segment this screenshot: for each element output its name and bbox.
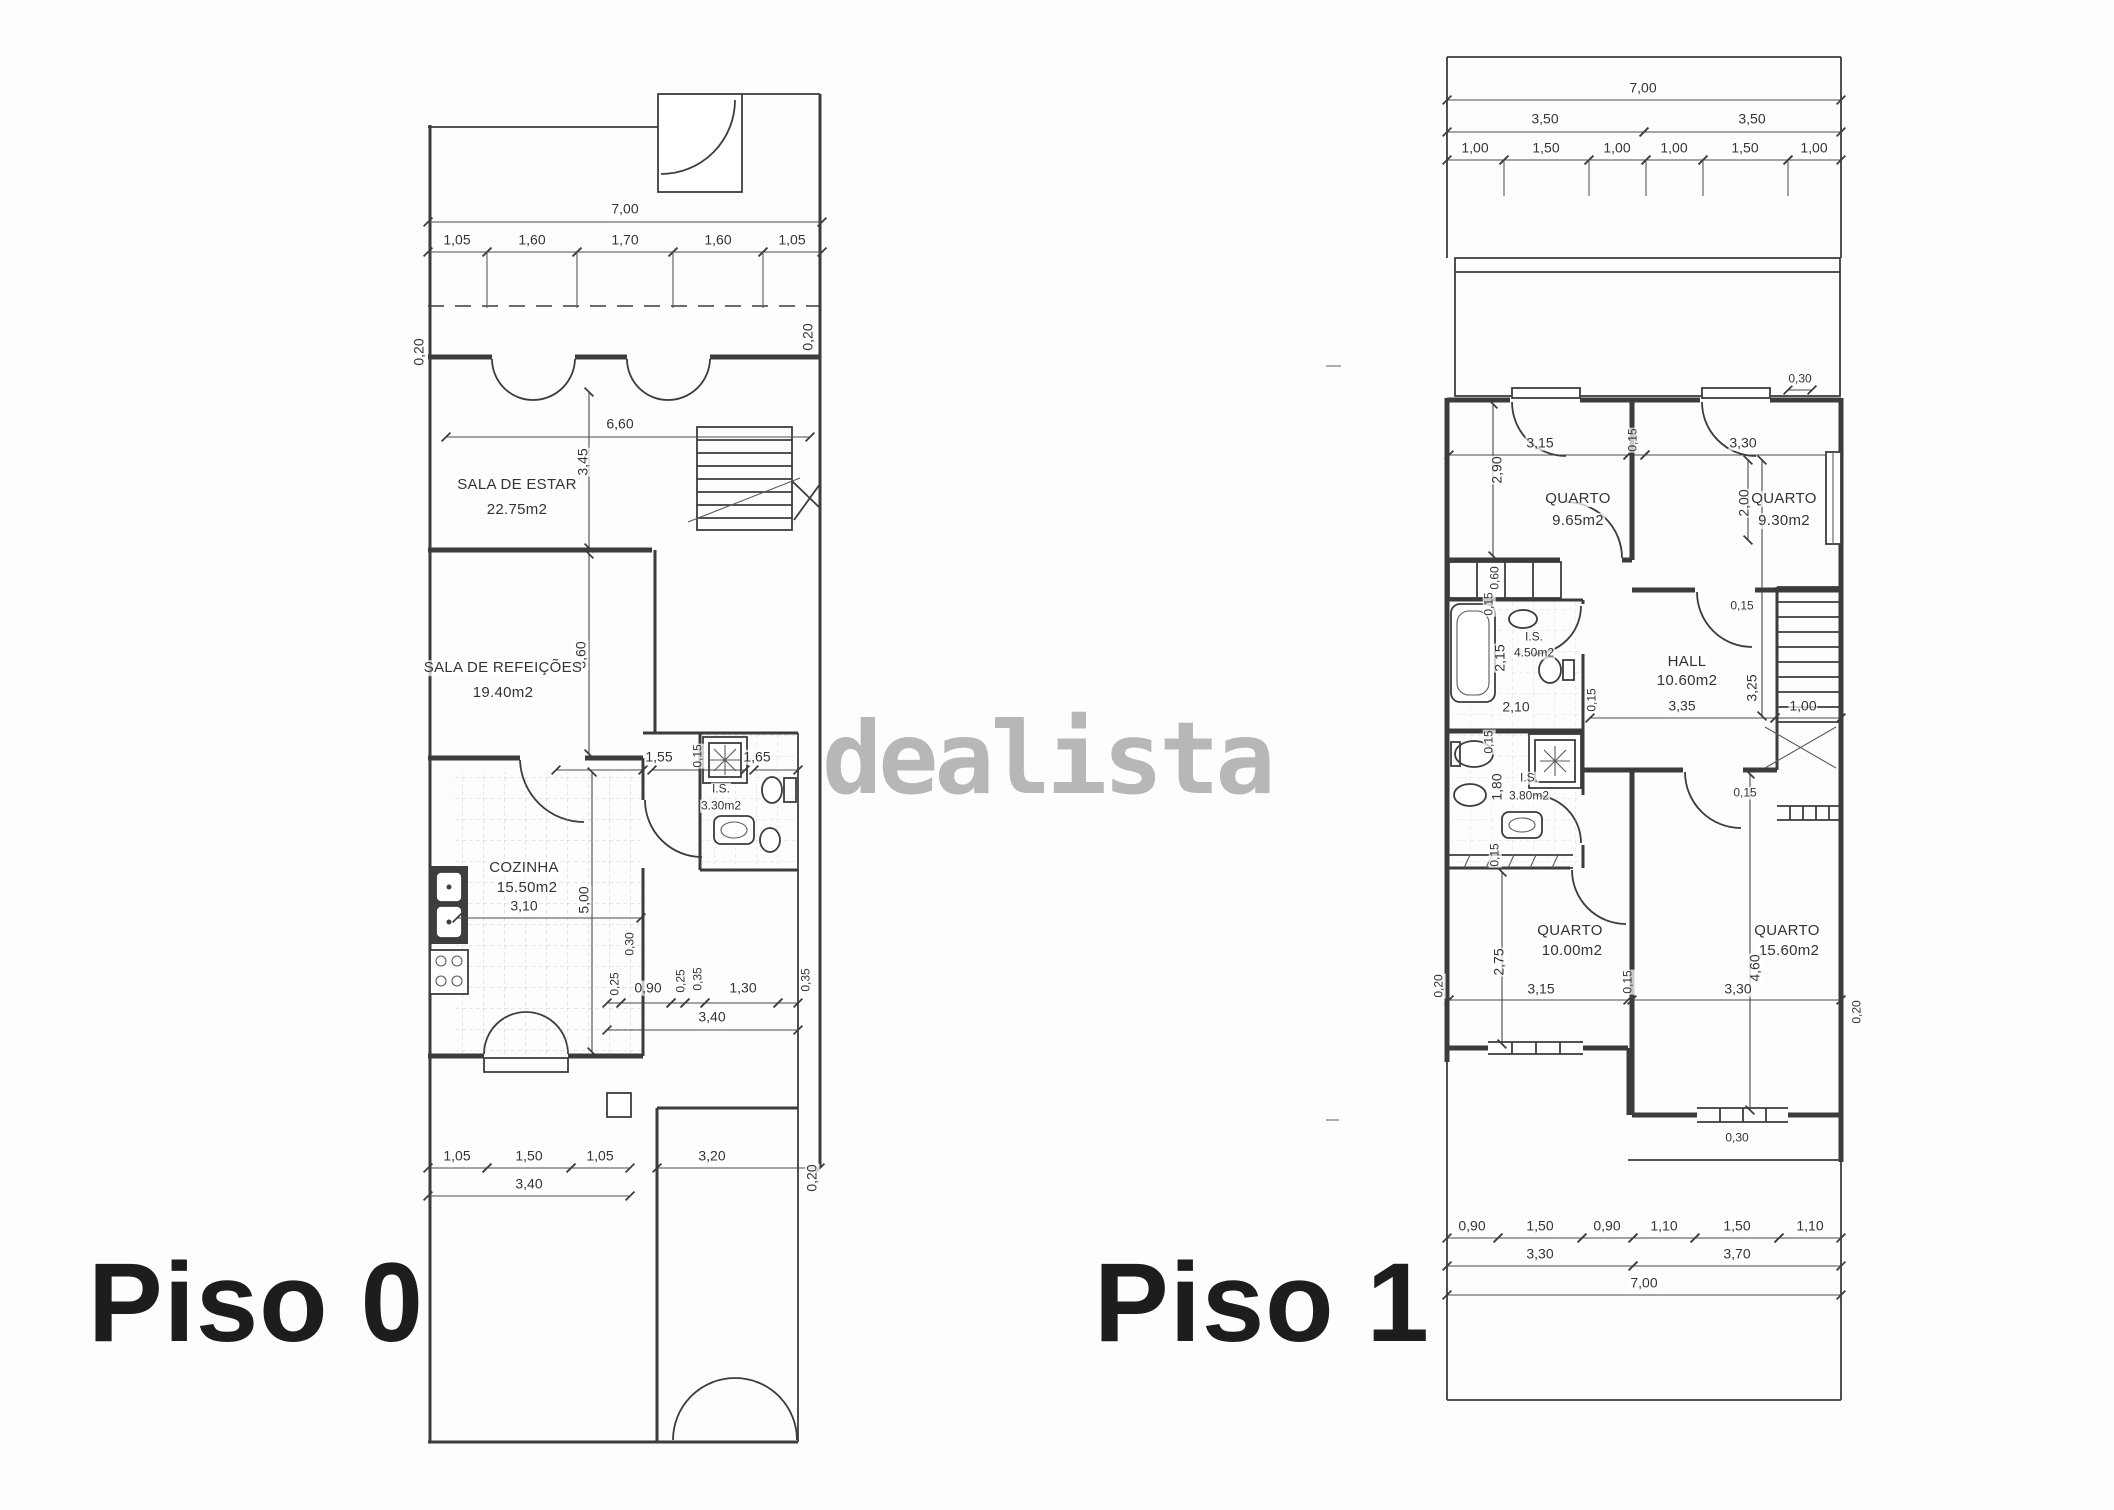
dim-label: 0,15 <box>1586 687 1599 712</box>
dim-label: 3,40 <box>697 1010 726 1025</box>
dim-label: 3,15 <box>1526 982 1555 997</box>
dim-label: 1,55 <box>644 750 673 765</box>
room-area-is2: 3.80m2 <box>1508 790 1550 803</box>
dim-label: 0,30 <box>1787 373 1812 386</box>
dim-label: 0,90 <box>1592 1219 1621 1234</box>
room-label-is: I.S. <box>711 783 731 796</box>
dim-label: 7,00 <box>610 202 639 217</box>
dim-label: 1,00 <box>1602 141 1631 156</box>
room-area-hall: 10.60m2 <box>1656 673 1718 689</box>
dim-label: 1,65 <box>742 750 771 765</box>
dim-label: 0,60 <box>1489 565 1502 590</box>
room-area-quarto1: 9.65m2 <box>1551 513 1605 529</box>
dim-label: 1,10 <box>1795 1219 1824 1234</box>
room-area-sala-de-estar: 22.75m2 <box>486 502 548 518</box>
dim-label: 1,50 <box>514 1149 543 1164</box>
dim-label: 3,20 <box>697 1149 726 1164</box>
dim-label: 4,60 <box>1748 953 1763 982</box>
piso1-plan <box>1326 57 1841 1400</box>
dim-label: 1,80 <box>1490 772 1505 801</box>
dim-label: 1,70 <box>610 233 639 248</box>
dim-label: 0,35 <box>692 966 705 991</box>
room-area-quarto4: 15.60m2 <box>1758 943 1820 959</box>
dim-label: 3,15 <box>1525 436 1554 451</box>
dim-label: 2,10 <box>1501 700 1530 715</box>
dim-label: 3,50 <box>1530 112 1559 127</box>
dim-label: 1,05 <box>777 233 806 248</box>
dim-label: 3,30 <box>1723 982 1752 997</box>
floor-title-piso0: Piso 0 <box>88 1238 424 1367</box>
dim-label: 1,60 <box>703 233 732 248</box>
dim-label: 0,20 <box>805 1163 820 1192</box>
dim-label: 0,25 <box>675 968 688 993</box>
piso1-stairs <box>1765 587 1841 770</box>
dim-label: 3,30 <box>1525 1247 1554 1262</box>
dim-label: 0,15 <box>1483 729 1496 754</box>
dim-label: 0,30 <box>624 931 637 956</box>
dim-label: 0,35 <box>800 967 813 992</box>
dim-label: 0,15 <box>1732 787 1757 800</box>
room-area-is1: 4.50m2 <box>1513 647 1555 660</box>
dim-label: 1,60 <box>517 233 546 248</box>
piso0-stairs <box>688 427 800 530</box>
dim-label: 1,10 <box>1649 1219 1678 1234</box>
room-label-sala-de-estar: SALA DE ESTAR <box>456 477 578 493</box>
dim-label: 0,15 <box>1729 600 1754 613</box>
dim-label: 2,15 <box>1493 643 1508 672</box>
room-area-sala-de-refeicoes: 19.40m2 <box>472 685 534 701</box>
dim-label: 7,00 <box>1628 81 1657 96</box>
dim-label: 0,15 <box>1627 427 1640 452</box>
room-label-quarto2: QUARTO <box>1750 491 1817 507</box>
dim-label: 1,50 <box>1722 1219 1751 1234</box>
dim-label: 2,75 <box>1492 947 1507 976</box>
dim-label: 0,90 <box>633 981 662 996</box>
room-label-quarto4: QUARTO <box>1753 923 1820 939</box>
dim-label: 1,05 <box>585 1149 614 1164</box>
room-area-quarto3: 10.00m2 <box>1541 943 1603 959</box>
room-area-is: 3.30m2 <box>700 800 742 813</box>
room-label-sala-de-refeicoes: SALA DE REFEIÇÕES <box>423 660 583 676</box>
dim-label: 2,90 <box>1490 455 1505 484</box>
dim-label: 0,15 <box>692 743 705 768</box>
room-area-quarto2: 9.30m2 <box>1757 513 1811 529</box>
dim-label: 3,30 <box>1728 436 1757 451</box>
dim-label: 6,60 <box>605 417 634 432</box>
room-label-is2: I.S. <box>1519 772 1539 785</box>
dim-label: 1,00 <box>1659 141 1688 156</box>
piso1-balcony <box>1455 258 1840 396</box>
dim-label: 3,25 <box>1745 673 1760 702</box>
dim-label: 1,30 <box>728 981 757 996</box>
dim-label: 0,15 <box>1489 842 1502 867</box>
dim-label: 3,70 <box>1722 1247 1751 1262</box>
room-label-quarto3: QUARTO <box>1536 923 1603 939</box>
dim-label: 0,25 <box>609 971 622 996</box>
dim-label: 7,00 <box>1629 1276 1658 1291</box>
dim-label: 5,00 <box>577 885 592 914</box>
dim-label: 3,40 <box>514 1177 543 1192</box>
dim-label: 0,15 <box>1622 969 1635 994</box>
dim-label: 0,90 <box>1457 1219 1486 1234</box>
dim-label: 0,20 <box>1433 973 1446 998</box>
dim-label: 0,20 <box>801 322 816 351</box>
dim-label: 0,15 <box>1483 591 1496 616</box>
dim-label: 0,30 <box>1724 1132 1749 1145</box>
floorplan-image: 7,00 1,05 1,60 1,70 1,60 1,05 0,20 0,20 … <box>0 0 2114 1510</box>
dim-label: 0,20 <box>412 337 427 366</box>
dim-label: 1,00 <box>1799 141 1828 156</box>
dim-label: 1,50 <box>1525 1219 1554 1234</box>
room-label-quarto1: QUARTO <box>1544 491 1611 507</box>
piso0-plan <box>428 94 822 1442</box>
dim-label: 1,00 <box>1788 699 1817 714</box>
dim-label: 1,05 <box>442 1149 471 1164</box>
room-label-hall: HALL <box>1667 654 1708 670</box>
dim-label: 1,50 <box>1531 141 1560 156</box>
floor-title-piso1: Piso 1 <box>1094 1238 1430 1367</box>
room-label-cozinha: COZINHA <box>488 860 560 876</box>
dim-label: 1,05 <box>442 233 471 248</box>
idealista-watermark: dealista <box>822 700 1272 817</box>
dim-label: 1,50 <box>1730 141 1759 156</box>
piso1-walls <box>1447 398 1841 1400</box>
dim-label: 0,20 <box>1851 999 1864 1024</box>
dim-label: 1,00 <box>1460 141 1489 156</box>
dim-label: 3,35 <box>1667 699 1696 714</box>
dim-label: 3,50 <box>1737 112 1766 127</box>
room-label-is1: I.S. <box>1524 631 1544 644</box>
dim-label: 3,45 <box>576 447 591 476</box>
dim-label: 2,00 <box>1737 488 1752 517</box>
dim-label: 3,10 <box>509 899 538 914</box>
room-area-cozinha: 15.50m2 <box>496 880 558 896</box>
